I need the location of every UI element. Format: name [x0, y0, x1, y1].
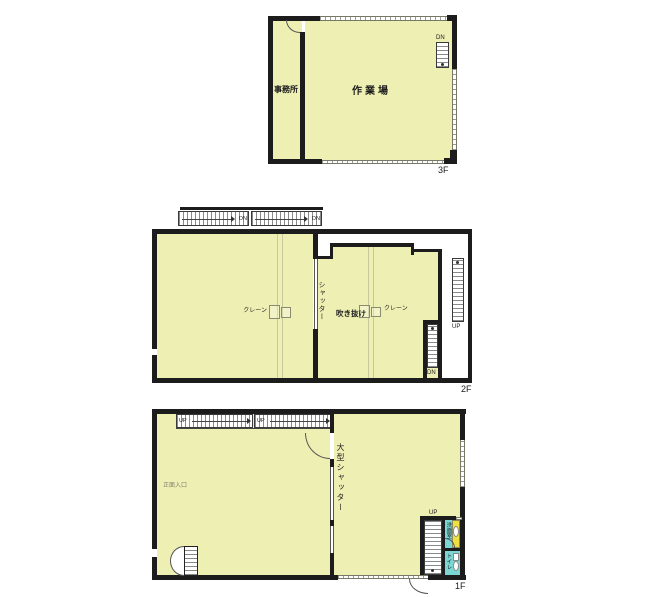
window-strip	[320, 16, 447, 21]
entrance-label: 正面入口	[163, 483, 187, 489]
crane-symbol	[371, 307, 381, 317]
crane-label-right: クレーン	[384, 306, 408, 312]
stair-line	[255, 219, 305, 220]
stair-guard-wall	[180, 207, 323, 210]
stair-dn-inner-2f	[427, 324, 438, 368]
wall	[452, 16, 457, 69]
floor2-label: 2F	[461, 385, 472, 394]
stair-ext-top-a: DN	[178, 211, 249, 226]
wall	[438, 324, 442, 382]
stair-dot	[431, 569, 434, 572]
sink-icon	[453, 526, 459, 537]
stair-up-1f-a: UP	[176, 414, 253, 428]
arrow-right-icon	[304, 216, 308, 222]
window-strip	[452, 69, 457, 150]
large-shutter	[330, 526, 334, 553]
room-atrium-2f	[318, 259, 438, 378]
large-shutter	[330, 467, 334, 520]
stair-dn-label: DN	[427, 370, 436, 376]
wall-partition	[313, 329, 318, 378]
crane-label-left: クレーン	[238, 308, 267, 314]
shutter-label-2f: シャッター	[318, 281, 325, 321]
wall	[268, 16, 273, 164]
toilet-icon	[453, 561, 459, 571]
wall	[468, 229, 472, 383]
window-strip	[322, 160, 444, 164]
floor2-plan: DN DN クレーン ク	[0, 200, 662, 395]
wall	[152, 575, 338, 580]
stair-ext-up-2f	[452, 258, 464, 322]
floor3-label: 3F	[438, 166, 449, 175]
arrow-right-icon	[231, 216, 235, 222]
office-label: 事務所	[274, 86, 298, 94]
stair-up-1f-b: UP	[254, 414, 332, 428]
wall	[152, 378, 472, 383]
stair-dn-label: DN	[239, 217, 247, 223]
wall-partition	[330, 553, 334, 580]
stair-dot	[431, 327, 434, 330]
stair-up-label: UP	[257, 419, 265, 425]
stair-dn-label: DN	[436, 35, 445, 41]
window-strip	[460, 440, 465, 487]
wall-partition	[330, 459, 334, 467]
stair-ext-top-b: DN	[251, 211, 322, 226]
floor-plan-canvas: DN 事務所 作業場 3F DN DN	[0, 0, 662, 597]
wall-partition	[330, 409, 334, 433]
wall	[268, 159, 322, 164]
wall	[460, 487, 465, 580]
wall	[460, 409, 465, 440]
stair-dot	[441, 63, 444, 66]
stair-dot	[456, 261, 459, 264]
arrow-right-icon	[247, 418, 251, 424]
floor3-plan: DN 事務所 作業場 3F	[0, 0, 662, 200]
stair-line	[182, 219, 232, 220]
stair-line	[192, 421, 248, 422]
wall	[438, 249, 442, 324]
toilet-label: トイレ	[445, 553, 451, 570]
atrium-label: 吹き抜け	[336, 310, 366, 318]
stair-up-label: UP	[179, 419, 187, 425]
toilet-icon	[453, 553, 459, 561]
stair-up-right-1f	[424, 520, 442, 575]
crane-symbol	[269, 305, 280, 319]
stair-line	[270, 421, 327, 422]
stair-up-label: UP	[452, 324, 460, 330]
stair-dn-label: DN	[312, 217, 320, 223]
stair-stringer	[176, 428, 332, 429]
room-left-2f	[157, 234, 313, 378]
floor1-label: 1F	[455, 582, 466, 591]
entrance-closet	[184, 546, 198, 576]
crane-symbol	[281, 307, 291, 318]
floor1-plan: UP UP 大型シャッター 正面入口 UP	[0, 395, 662, 597]
large-shutter-label: 大型シャッター	[336, 443, 344, 513]
room-atrium-2f	[411, 252, 438, 259]
wall	[411, 249, 441, 252]
workshop-label: 作業場	[352, 87, 391, 97]
door-arc-exterior	[409, 579, 428, 594]
washroom-label: 洗面室	[445, 522, 451, 539]
wall-partition-office	[300, 32, 305, 160]
wall	[444, 158, 457, 164]
